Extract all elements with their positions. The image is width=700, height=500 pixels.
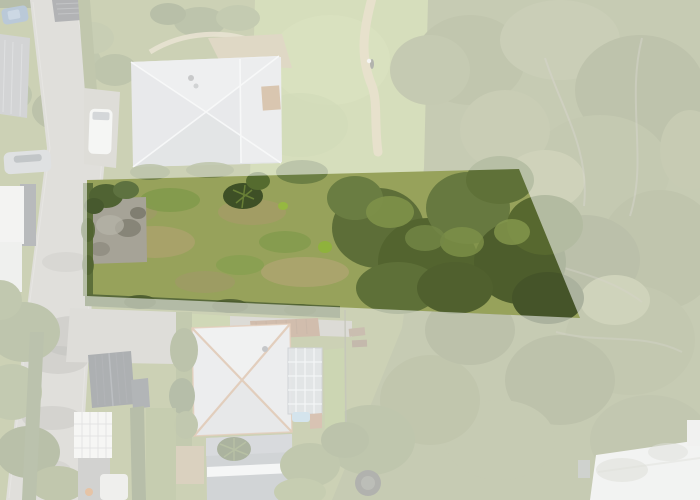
pad-debris — [130, 207, 146, 219]
aerial-photo — [0, 0, 700, 500]
green-grass-patch — [140, 188, 200, 212]
shrub-highlight — [366, 196, 414, 228]
dry-grass-patch — [175, 271, 235, 293]
dry-grass-patch — [261, 257, 349, 287]
bright-bush — [278, 202, 288, 210]
shrub-highlight — [440, 227, 484, 257]
bright-bush — [318, 241, 332, 253]
parcel-shrub — [417, 262, 493, 314]
shrub-highlight — [494, 219, 530, 245]
bush-cluster — [113, 181, 139, 199]
green-grass-patch — [216, 255, 264, 275]
green-grass-patch — [259, 231, 311, 253]
aerial-scene — [0, 0, 700, 500]
shrub-highlight — [405, 225, 445, 251]
pad-light — [96, 215, 124, 235]
